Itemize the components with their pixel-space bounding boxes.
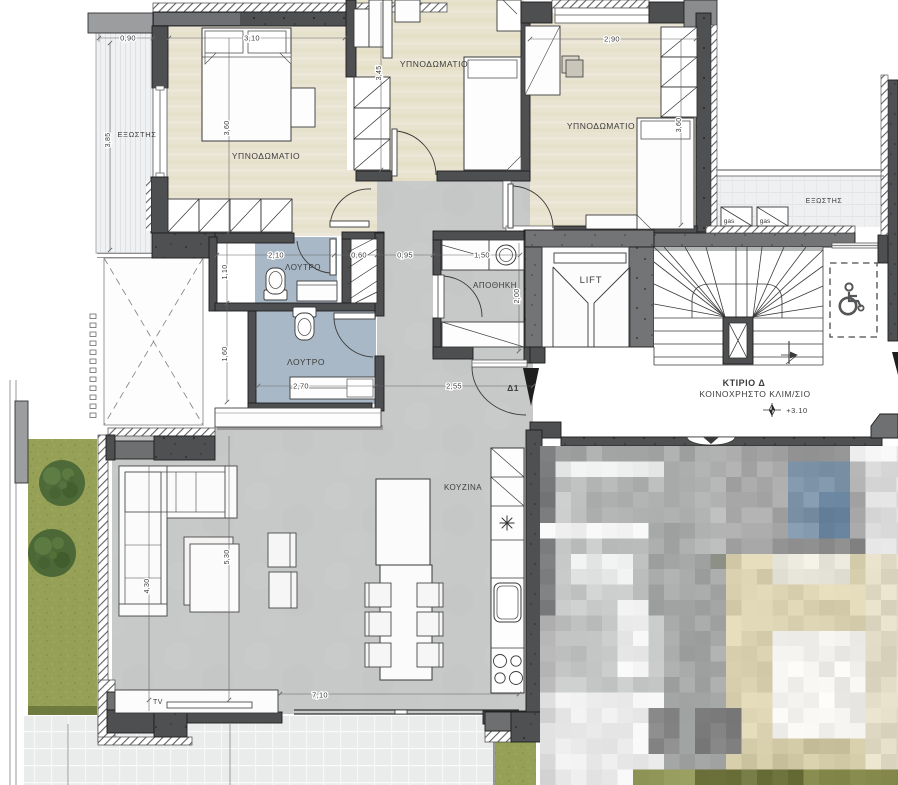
svg-text:2,10: 2,10 bbox=[268, 251, 284, 260]
svg-text:ΥΠΝΟΔΩΜΑΤΙΟ: ΥΠΝΟΔΩΜΑΤΙΟ bbox=[567, 121, 635, 131]
svg-text:gas: gas bbox=[724, 218, 735, 225]
svg-text:ΑΠΟΘΗΚΗ: ΑΠΟΘΗΚΗ bbox=[473, 281, 517, 290]
svg-text:gas: gas bbox=[760, 218, 771, 225]
svg-text:3,85: 3,85 bbox=[105, 133, 112, 148]
svg-text:4,30: 4,30 bbox=[144, 579, 151, 594]
svg-text:3,45: 3,45 bbox=[376, 66, 383, 81]
svg-text:5,30: 5,30 bbox=[224, 550, 231, 565]
svg-text:ΕΞΩΣΤΗΣ: ΕΞΩΣΤΗΣ bbox=[118, 130, 157, 139]
svg-text:3,60: 3,60 bbox=[224, 121, 231, 136]
svg-text:ΚΟΥΖΙΝΑ: ΚΟΥΖΙΝΑ bbox=[444, 483, 482, 492]
svg-text:ΕΞΩΣΤΗΣ: ΕΞΩΣΤΗΣ bbox=[806, 198, 843, 205]
svg-text:+3.10: +3.10 bbox=[786, 406, 807, 415]
svg-text:0,95: 0,95 bbox=[397, 251, 413, 260]
svg-text:1,10: 1,10 bbox=[222, 265, 229, 280]
svg-text:ΥΠΝΟΔΩΜΑΤΙΟ: ΥΠΝΟΔΩΜΑΤΙΟ bbox=[400, 59, 468, 69]
svg-text:2,90: 2,90 bbox=[604, 35, 620, 44]
svg-text:3,60: 3,60 bbox=[676, 118, 683, 133]
svg-text:0,90: 0,90 bbox=[120, 34, 136, 43]
svg-text:ΚΟΙΝΟΧΡΗΣΤΟ ΚΛΙΜ/ΣΙΟ: ΚΟΙΝΟΧΡΗΣΤΟ ΚΛΙΜ/ΣΙΟ bbox=[699, 389, 810, 399]
svg-text:3,10: 3,10 bbox=[244, 34, 260, 43]
svg-text:2,70: 2,70 bbox=[293, 382, 309, 391]
svg-text:TV: TV bbox=[153, 699, 163, 706]
svg-text:2,00: 2,00 bbox=[514, 289, 521, 304]
svg-text:ΛΟΥΤΡΟ: ΛΟΥΤΡΟ bbox=[287, 357, 325, 367]
svg-text:LIFT: LIFT bbox=[580, 275, 603, 286]
svg-text:2,55: 2,55 bbox=[446, 382, 462, 391]
svg-text:ΥΠΝΟΔΩΜΑΤΙΟ: ΥΠΝΟΔΩΜΑΤΙΟ bbox=[232, 151, 300, 161]
svg-text:ΚΤΙΡΙΟ Δ: ΚΤΙΡΙΟ Δ bbox=[723, 378, 766, 388]
svg-text:Δ1: Δ1 bbox=[507, 383, 519, 393]
svg-text:ΛΟΥΤΡΟ: ΛΟΥΤΡΟ bbox=[285, 263, 321, 272]
svg-text:1,60: 1,60 bbox=[222, 347, 229, 362]
svg-text:7,10: 7,10 bbox=[312, 691, 328, 700]
svg-text:0,60: 0,60 bbox=[351, 251, 367, 260]
svg-text:1,50: 1,50 bbox=[474, 251, 490, 260]
